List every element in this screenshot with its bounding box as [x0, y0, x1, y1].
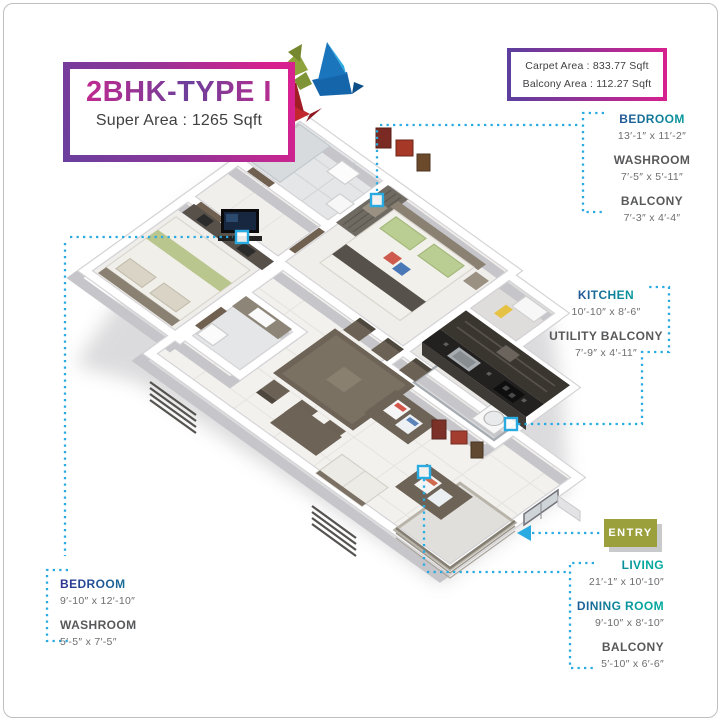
room-label-utility-balcony: UTILITY BALCONY: [548, 329, 664, 343]
entry-step: [558, 496, 580, 521]
room-label-balcony2: BALCONY: [540, 640, 664, 654]
picture-frame: [432, 420, 446, 439]
room-label-kitchen: KITCHEN: [548, 288, 664, 302]
room-label-washroom2: WASHROOM: [60, 618, 210, 632]
room-dims-balcony2: 5′-10″ x 6′-6″: [540, 657, 664, 671]
picture-frame: [417, 154, 430, 171]
room-label-bedroom2: BEDROOM: [60, 577, 210, 591]
room-dims-washroom2: 5′-5″ x 7′-5″: [60, 635, 210, 649]
title-card: 2BHK-TYPE I Super Area : 1265 Sqft: [63, 62, 295, 162]
carpet-area-text: Carpet Area : 833.77 Sqft: [511, 57, 663, 75]
picture-frame: [451, 431, 467, 444]
bedroom-wall-art: [376, 128, 430, 171]
room-dims-balcony1: 7′-3″ x 4′-4″: [588, 211, 716, 225]
room-label-balcony1: BALCONY: [588, 194, 716, 208]
balcony-area-text: Balcony Area : 112.27 Sqft: [511, 75, 663, 93]
room-dims-bedroom1: 13′-1″ x 11′-2″: [588, 129, 716, 143]
super-area-text: Super Area : 1265 Sqft: [70, 112, 288, 130]
area-card: Carpet Area : 833.77 Sqft Balcony Area :…: [507, 48, 667, 101]
label-group-kitchen: KITCHEN 10′-10″ x 8′-6″ UTILITY BALCONY …: [548, 288, 664, 360]
label-group-living: LIVING 21′-1″ x 10′-10″ DINING ROOM 9′-1…: [540, 558, 664, 671]
marker-living: [418, 466, 430, 478]
room-dims-living: 21′-1″ x 10′-10″: [540, 575, 664, 589]
room-label-living: LIVING: [540, 558, 664, 572]
room-dims-washroom1: 7′-5″ x 5′-11″: [588, 170, 716, 184]
label-group-bottom-left: BEDROOM 9′-10″ x 12′-10″ WASHROOM 5′-5″ …: [60, 577, 210, 649]
room-dims-bedroom2: 9′-10″ x 12′-10″: [60, 594, 210, 608]
floor-plan-brochure: { "title_card": { "title": "2BHK-TYPE I"…: [0, 0, 721, 721]
room-label-bedroom1: BEDROOM: [588, 112, 716, 126]
picture-frame: [471, 442, 483, 458]
room-label-washroom1: WASHROOM: [588, 153, 716, 167]
marker-kitchen: [505, 418, 517, 430]
entry-badge: ENTRY: [604, 519, 657, 547]
label-group-top-right: BEDROOM 13′-1″ x 11′-2″ WASHROOM 7′-5″ x…: [588, 112, 716, 225]
room-dims-utility-balcony: 7′-9″ x 4′-11″: [548, 346, 664, 360]
marker-bedroom1: [371, 194, 383, 206]
picture-frame: [396, 140, 413, 156]
origami-bird-blue-icon: [312, 42, 364, 96]
room-dims-dining: 9′-10″ x 8′-10″: [540, 616, 664, 630]
entry-arrow-icon: [517, 525, 531, 541]
marker-bedroom2: [236, 231, 248, 243]
room-dims-kitchen: 10′-10″ x 8′-6″: [548, 305, 664, 319]
picture-frame: [376, 128, 391, 148]
room-label-dining: DINING ROOM: [540, 599, 664, 613]
plan-title: 2BHK-TYPE I: [70, 76, 288, 109]
